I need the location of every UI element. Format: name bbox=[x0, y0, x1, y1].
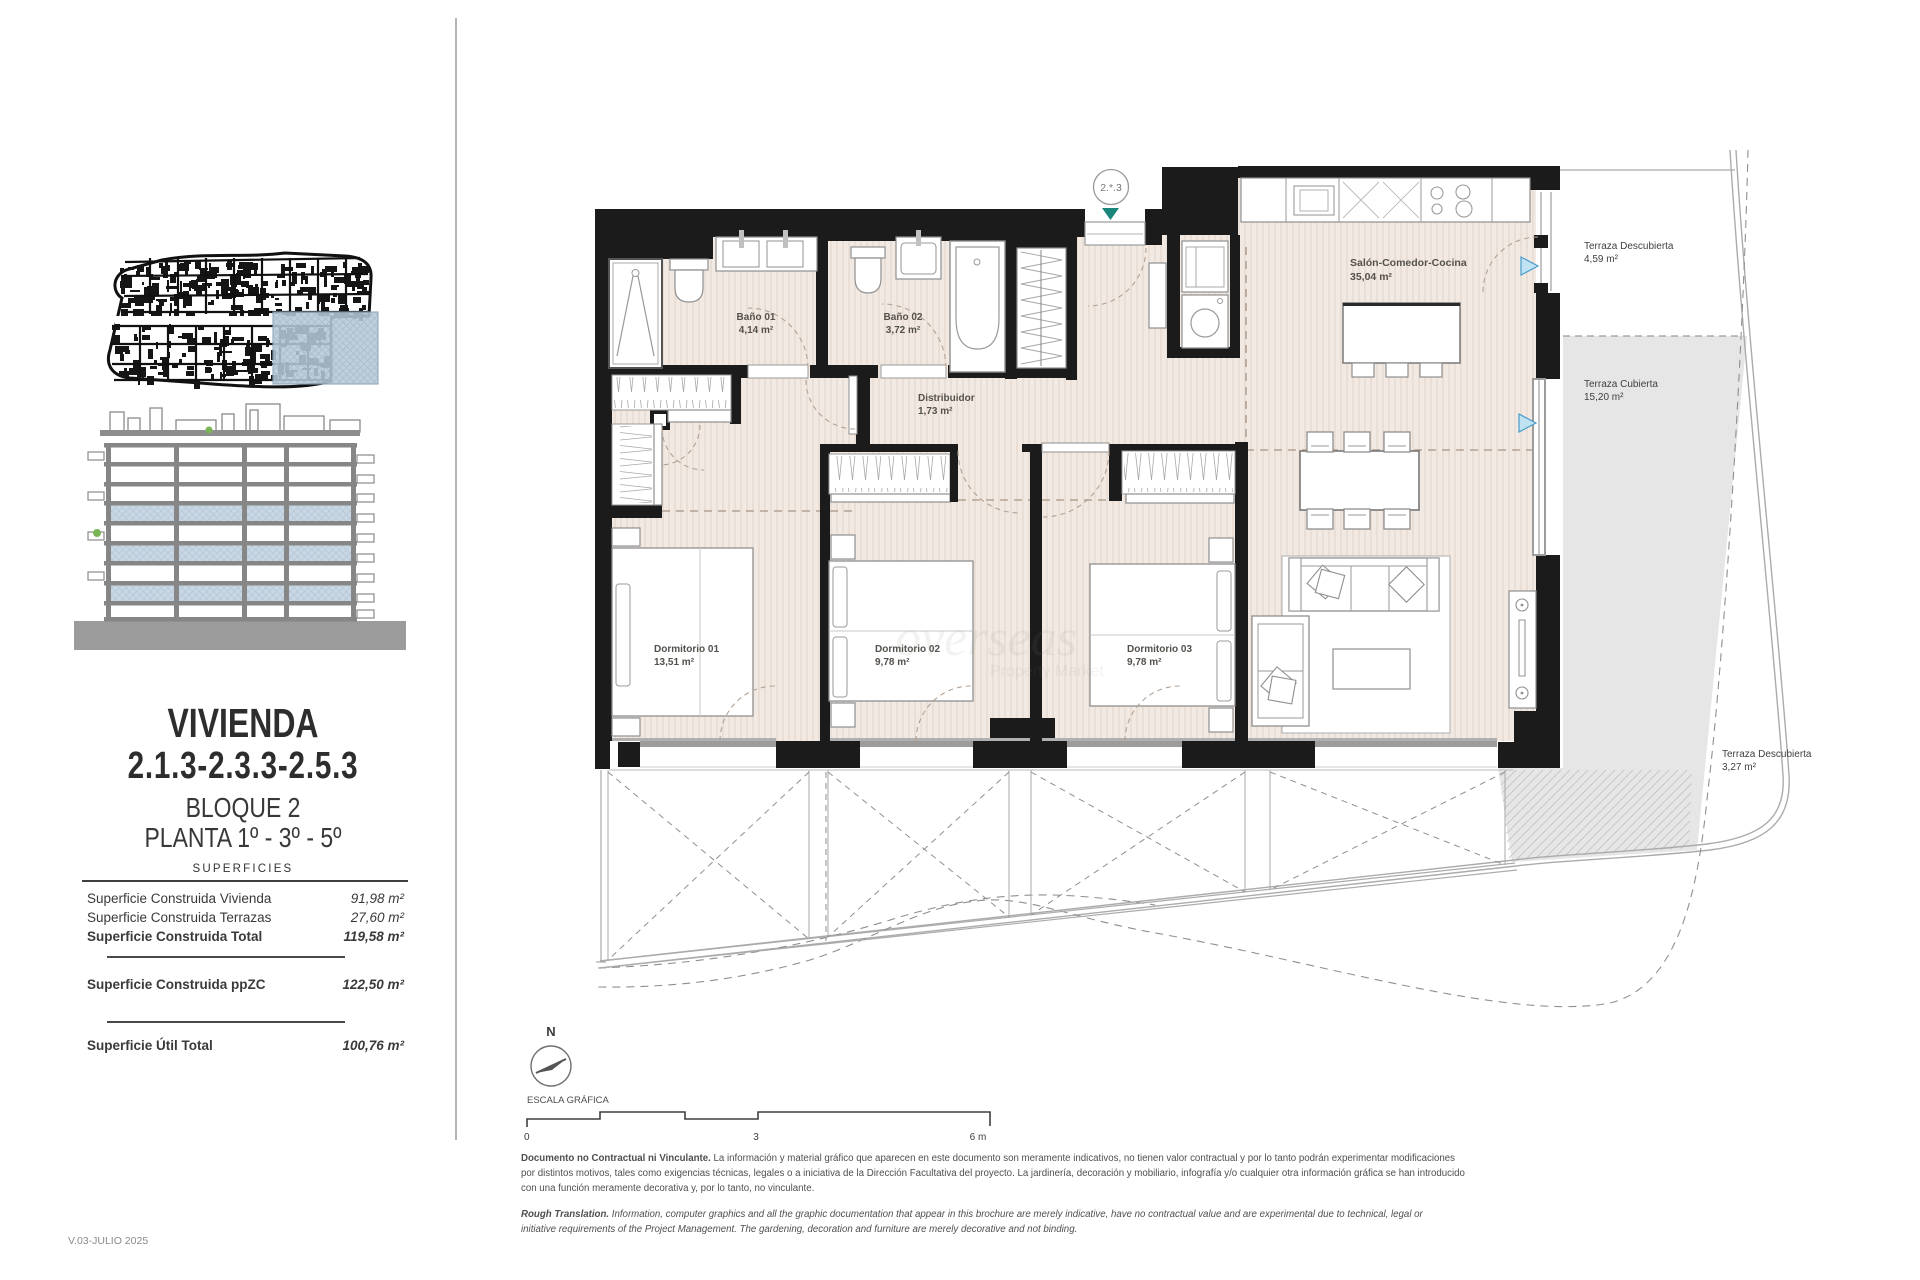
svg-text:3,27 m²: 3,27 m² bbox=[1722, 762, 1757, 773]
svg-text:Distribuidor: Distribuidor bbox=[918, 393, 975, 404]
svg-text:2.*.3: 2.*.3 bbox=[1100, 182, 1122, 194]
svg-text:overseas: overseas bbox=[895, 610, 1077, 667]
svg-text:Terraza Descubierta: Terraza Descubierta bbox=[1584, 241, 1674, 252]
svg-text:1,73 m²: 1,73 m² bbox=[918, 406, 953, 417]
svg-text:4,14 m²: 4,14 m² bbox=[739, 325, 774, 336]
svg-text:35,04 m²: 35,04 m² bbox=[1350, 271, 1393, 283]
svg-text:6 m: 6 m bbox=[970, 1132, 987, 1143]
svg-text:0: 0 bbox=[524, 1132, 530, 1143]
svg-text:Dormitorio 03: Dormitorio 03 bbox=[1127, 644, 1192, 655]
svg-text:4,59 m²: 4,59 m² bbox=[1584, 254, 1619, 265]
svg-text:3: 3 bbox=[753, 1132, 759, 1143]
svg-text:Terraza Descubierta: Terraza Descubierta bbox=[1722, 749, 1812, 760]
svg-text:Dormitorio 01: Dormitorio 01 bbox=[654, 644, 719, 655]
svg-text:13,51 m²: 13,51 m² bbox=[654, 657, 695, 668]
svg-text:Terraza Cubierta: Terraza Cubierta bbox=[1584, 379, 1658, 390]
svg-text:ESCALA GRÁFICA: ESCALA GRÁFICA bbox=[527, 1095, 609, 1106]
svg-text:9,78 m²: 9,78 m² bbox=[1127, 657, 1162, 668]
svg-text:Salón-Comedor-Cocina: Salón-Comedor-Cocina bbox=[1350, 257, 1467, 269]
svg-text:Baño 01: Baño 01 bbox=[737, 312, 776, 323]
svg-text:N: N bbox=[546, 1024, 555, 1039]
svg-text:Baño 02: Baño 02 bbox=[884, 312, 923, 323]
svg-text:Property Market: Property Market bbox=[990, 663, 1104, 680]
svg-text:3,72 m²: 3,72 m² bbox=[886, 325, 921, 336]
svg-text:15,20 m²: 15,20 m² bbox=[1584, 392, 1624, 403]
